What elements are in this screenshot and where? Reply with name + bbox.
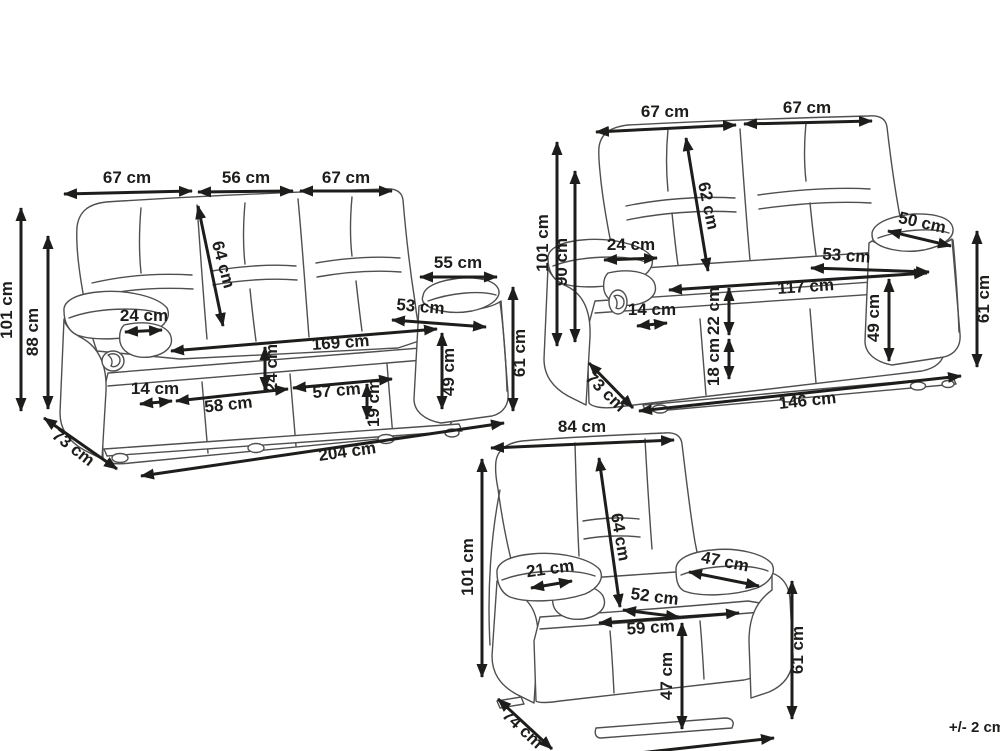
dim-label: 84 cm (558, 417, 606, 436)
dim-label: 49 cm (864, 294, 883, 342)
two-seater-sofa-drawing (544, 116, 960, 413)
dim-label: 24 cm (120, 306, 168, 325)
dim-label: 101 cm (533, 214, 552, 272)
dimension-diagram: 67 cm 56 cm 67 cm 64 cm 101 cm 88 cm 24 … (0, 0, 1000, 751)
dim-label: 49 cm (439, 348, 458, 396)
dim-3s-overall-height: 101 cm (0, 208, 21, 411)
dim-label: 14 cm (628, 300, 676, 319)
dim-label: 22 cm (704, 287, 723, 335)
dim-ac-overall-depth: 74 cm (498, 699, 552, 751)
dim-label: 67 cm (322, 168, 370, 187)
dim-ac-armrest-height: 61 cm (788, 581, 807, 719)
dim-3s-armrest-height: 61 cm (510, 287, 529, 411)
dim-label: 24 cm (262, 344, 281, 392)
dim-ac-overall-width-arrow (612, 738, 774, 751)
dim-label: 169 cm (311, 331, 370, 354)
dim-label: 56 cm (222, 168, 270, 187)
dim-label: 53 cm (822, 244, 871, 266)
dim-label: 67 cm (103, 168, 151, 187)
tolerance-note: +/- 2 cm (949, 719, 1000, 736)
dim-label: 90 cm (552, 238, 571, 286)
dim-label: 117 cm (777, 275, 835, 298)
three-seater-sofa-drawing (60, 189, 508, 464)
dim-label: 14 cm (131, 379, 179, 398)
dim-label: 67 cm (641, 102, 689, 121)
dim-label: 59 cm (626, 616, 675, 638)
dim-3s-back-height: 88 cm (23, 236, 48, 409)
dim-3s-back-section-left: 67 cm (64, 168, 192, 194)
dim-label: 74 cm (499, 706, 547, 751)
dim-label: 19 cm (364, 379, 383, 427)
dim-label: 18 cm (704, 338, 723, 386)
dim-label: 61 cm (510, 329, 529, 377)
dim-label: 101 cm (0, 281, 16, 339)
dim-label: 88 cm (23, 308, 42, 356)
dim-2s-armrest-height: 61 cm (974, 231, 993, 367)
dim-3s-back-section-middle: 56 cm (198, 168, 293, 192)
dim-label: 101 cm (458, 538, 477, 596)
dim-3s-base-height: 19 cm (364, 379, 383, 427)
dim-label: 47 cm (657, 652, 676, 700)
dim-label: 61 cm (788, 626, 807, 674)
diagram-svg: 67 cm 56 cm 67 cm 64 cm 101 cm 88 cm 24 … (0, 0, 1000, 751)
dim-label: 61 cm (974, 275, 993, 323)
dim-3s-back-section-right: 67 cm (300, 168, 392, 191)
dim-label: 52 cm (630, 584, 680, 609)
dim-ac-overall-height: 101 cm (458, 459, 482, 677)
dim-label: 67 cm (783, 98, 831, 117)
dim-label: 55 cm (434, 253, 482, 272)
dim-3s-armrest-length: 55 cm (420, 253, 497, 277)
dim-label: 24 cm (607, 235, 655, 254)
dim-3s-seat-cushion-thickness: 24 cm (262, 344, 281, 392)
